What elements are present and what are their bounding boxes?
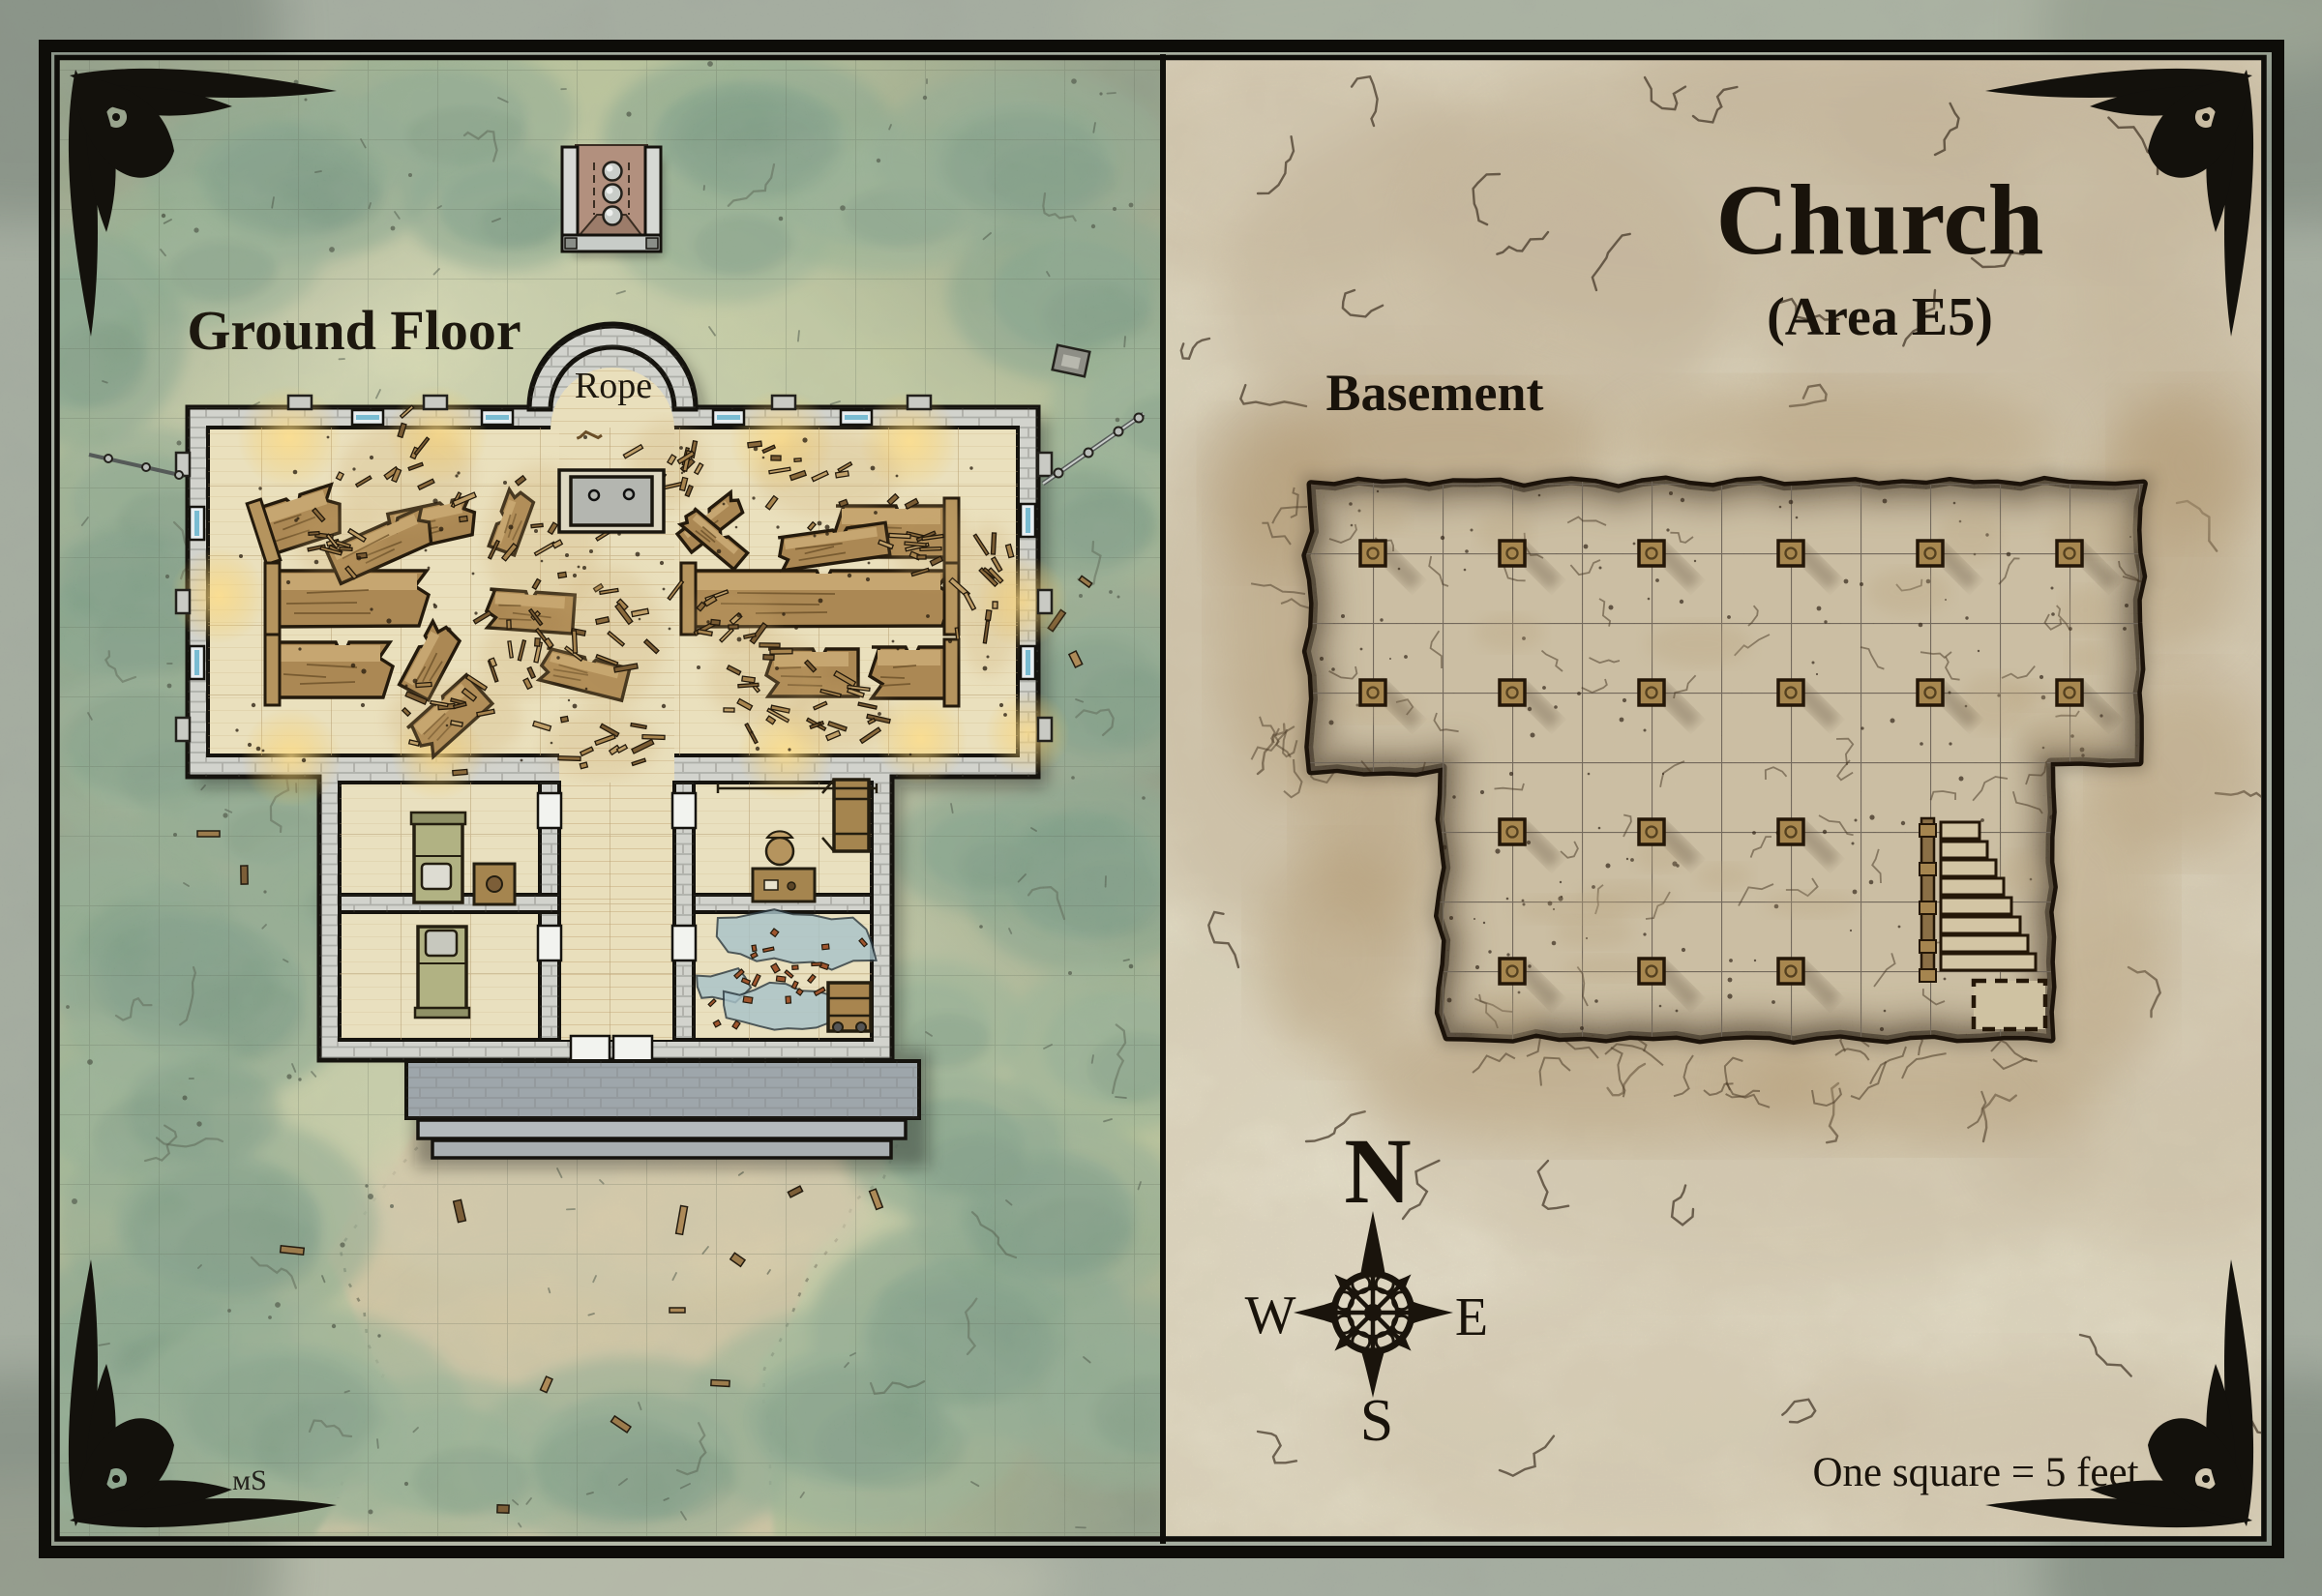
svg-text:ᴍS: ᴍS	[232, 1464, 267, 1496]
svg-text:Basement: Basement	[1326, 364, 1544, 422]
svg-text:(Area E5): (Area E5)	[1767, 287, 1993, 347]
svg-text:S: S	[1360, 1388, 1393, 1454]
svg-text:Ground Floor: Ground Floor	[187, 299, 521, 362]
svg-text:Church: Church	[1715, 164, 2043, 276]
svg-text:E: E	[1455, 1287, 1488, 1347]
svg-text:Rope: Rope	[575, 366, 652, 406]
svg-text:One square = 5 feet: One square = 5 feet	[1812, 1450, 2138, 1495]
svg-text:W: W	[1245, 1286, 1296, 1345]
svg-text:N: N	[1344, 1119, 1411, 1223]
